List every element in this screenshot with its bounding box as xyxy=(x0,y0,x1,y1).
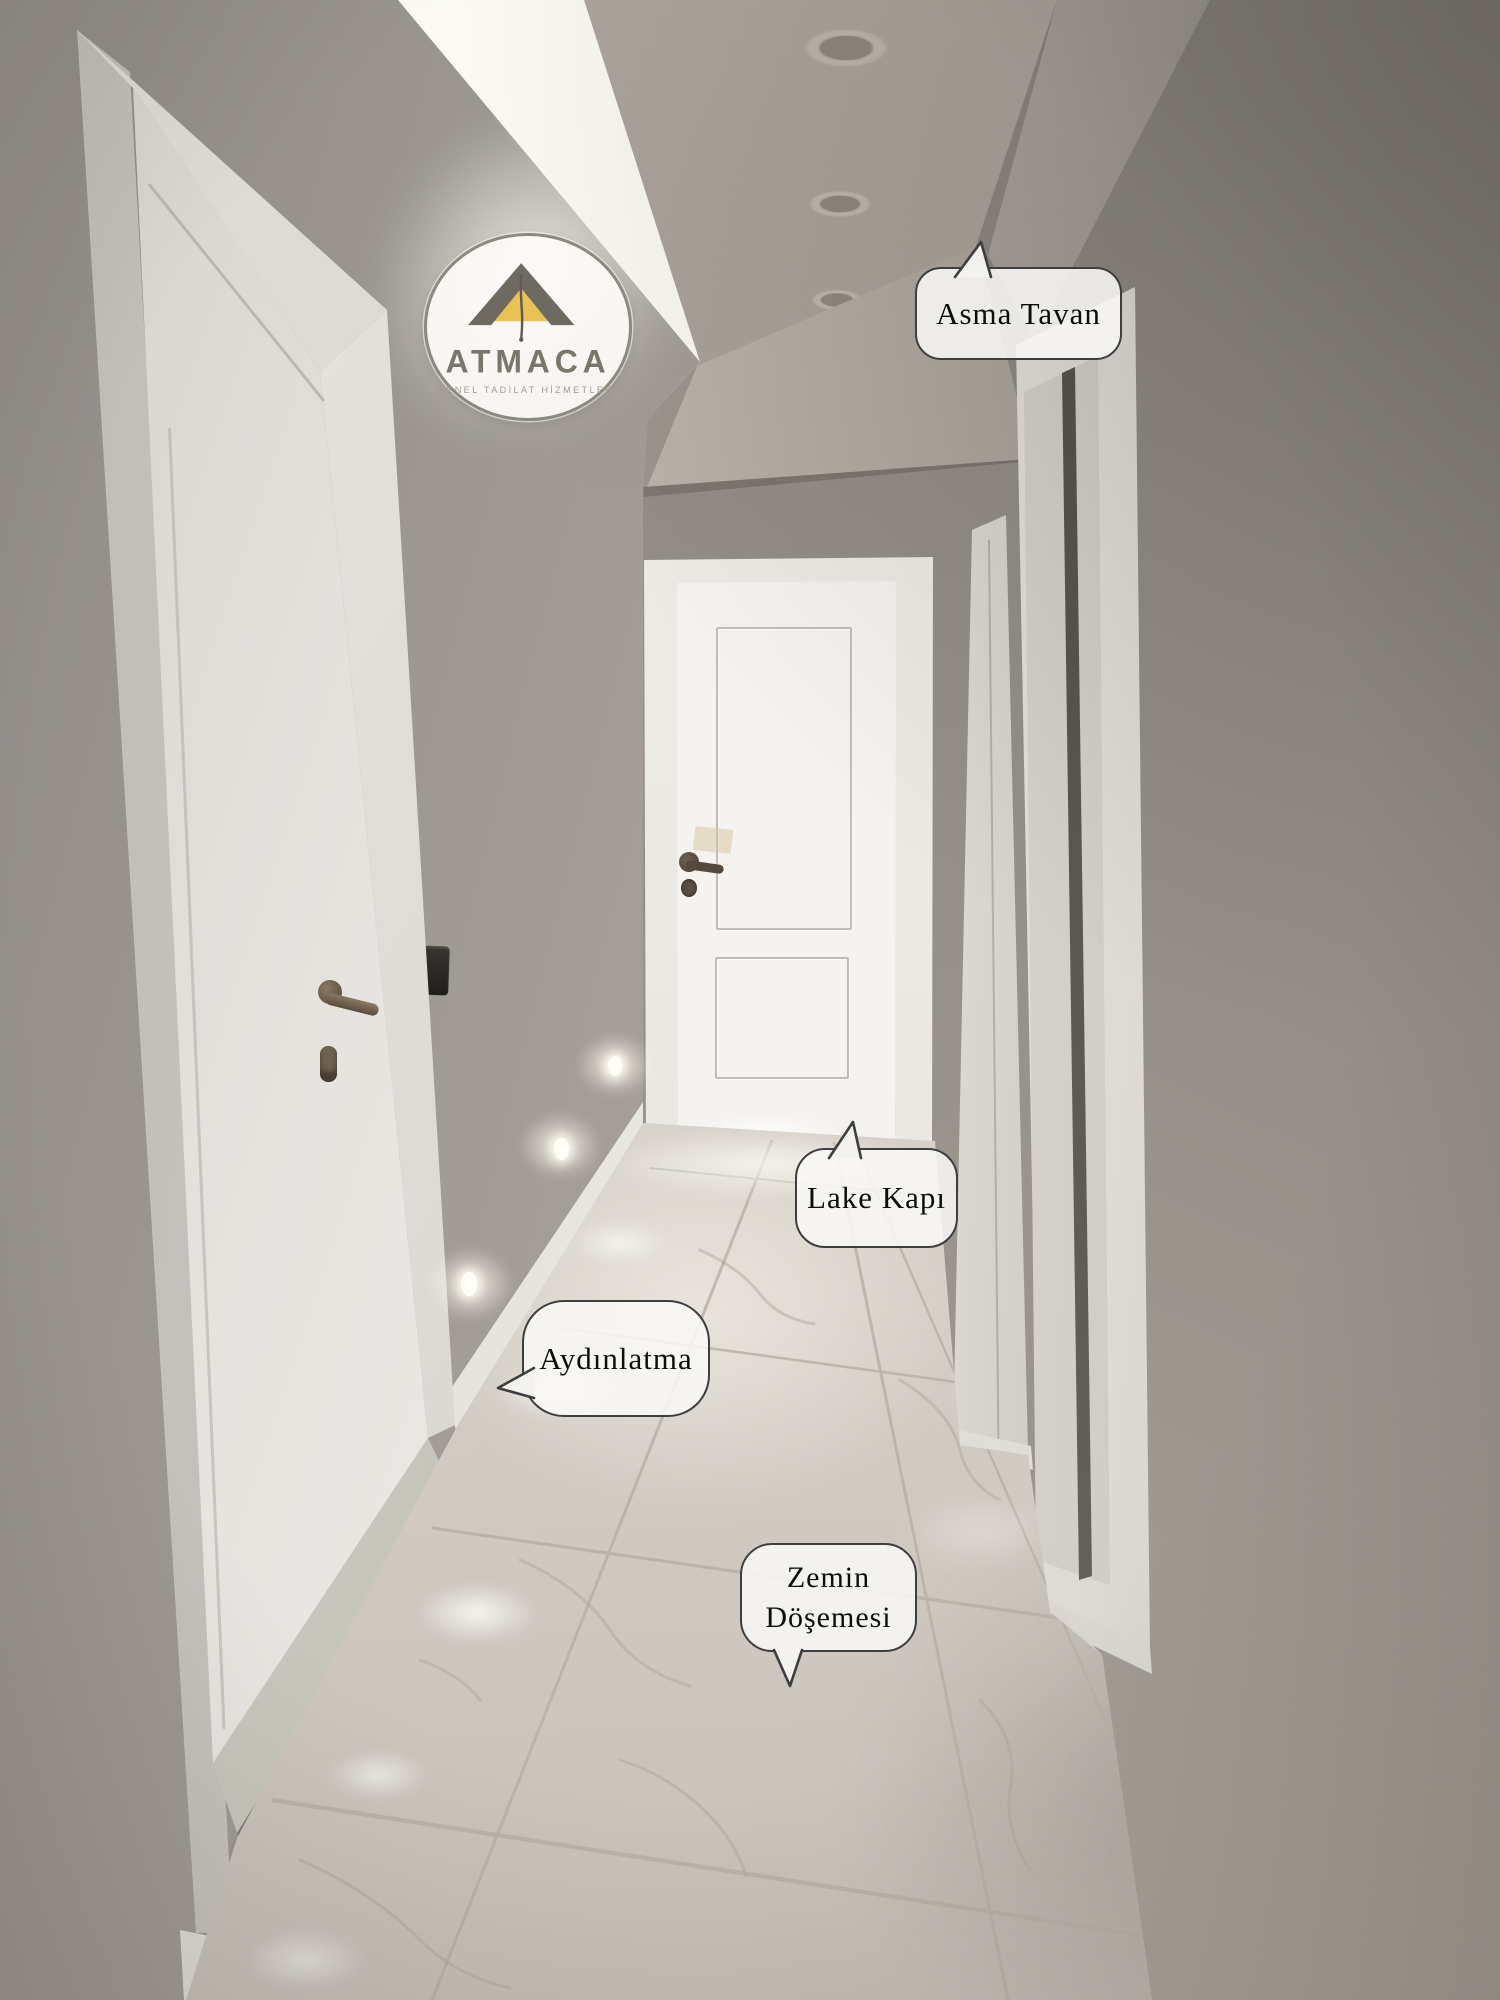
logo-plumb-line-icon xyxy=(521,275,522,339)
bubble-tail-icon xyxy=(766,1646,814,1690)
annotation-lighting-label: Aydınlatma xyxy=(539,1341,693,1377)
bubble-tail-icon xyxy=(821,1118,869,1160)
annotation-ceiling: Asma Tavan xyxy=(915,267,1122,360)
recessed-spotlight-icon xyxy=(798,26,894,70)
annotation-door-label: Lake Kapı xyxy=(807,1180,946,1216)
floor-reflection xyxy=(417,1583,537,1643)
floor-reflection xyxy=(572,1221,668,1265)
wall-light xyxy=(461,1272,477,1296)
door-lock-cylinder xyxy=(320,1046,337,1082)
bubble-tail-icon xyxy=(492,1360,536,1406)
logo-plumb-bob-icon xyxy=(519,337,523,341)
annotation-floor-label-line2: Döşemesi xyxy=(765,1598,891,1638)
floor-reflection xyxy=(245,1930,365,1990)
wall-light xyxy=(608,1056,622,1076)
end-door-panel xyxy=(716,627,852,930)
logo-graphic: ATMACA GENEL TADİLAT HİZMETLERİ xyxy=(427,236,629,418)
annotation-floor: Zemin Döşemesi xyxy=(740,1543,917,1652)
annotation-lighting: Aydınlatma xyxy=(522,1300,710,1417)
hallway-photo: ATMACA GENEL TADİLAT HİZMETLERİ Asma Tav… xyxy=(0,0,1500,2000)
annotation-ceiling-label: Asma Tavan xyxy=(936,296,1101,332)
bubble-tail-icon xyxy=(947,239,1001,279)
logo-brand-text: ATMACA xyxy=(445,344,610,380)
annotation-floor-label-line1: Zemin xyxy=(765,1558,891,1598)
annotation-door: Lake Kapı xyxy=(795,1148,958,1248)
tape-patch xyxy=(693,826,733,854)
end-door-panel xyxy=(715,957,849,1079)
door-keyhole xyxy=(681,879,697,897)
floor-reflection xyxy=(328,1750,428,1800)
wall-light xyxy=(554,1138,569,1160)
recessed-spotlight-icon xyxy=(804,189,876,219)
company-logo-badge: ATMACA GENEL TADİLAT HİZMETLERİ xyxy=(424,233,632,421)
logo-tagline-text: GENEL TADİLAT HİZMETLERİ xyxy=(437,385,619,395)
